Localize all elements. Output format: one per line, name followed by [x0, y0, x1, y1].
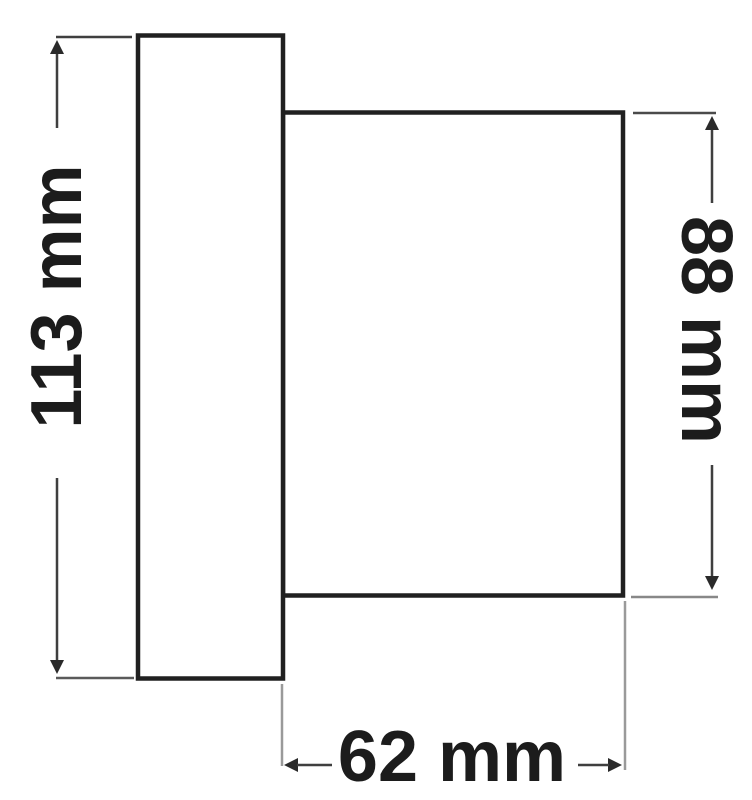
svg-text:113 mm: 113 mm	[17, 164, 97, 428]
svg-text:88 mm: 88 mm	[666, 216, 746, 444]
svg-text:62 mm: 62 mm	[338, 717, 566, 797]
